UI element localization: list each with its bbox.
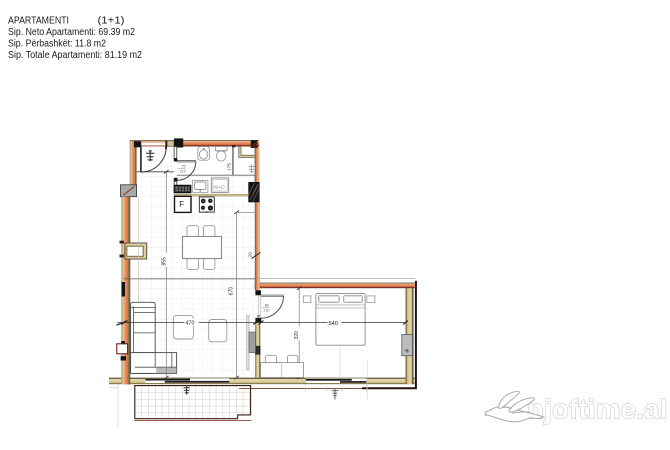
- svg-text:F: F: [179, 200, 184, 209]
- svg-text:470: 470: [186, 321, 195, 327]
- svg-text:2: 2: [326, 388, 328, 392]
- svg-text:210: 210: [180, 169, 186, 173]
- svg-text:80: 80: [265, 304, 269, 308]
- svg-text:175: 175: [227, 163, 233, 171]
- svg-text:320: 320: [294, 331, 300, 340]
- svg-text:210: 210: [263, 308, 269, 312]
- svg-text:670: 670: [229, 287, 235, 296]
- svg-text:540: 540: [329, 321, 338, 327]
- svg-text:Sip. Përbashkët: 11.8 m2: Sip. Përbashkët: 11.8 m2: [8, 39, 106, 50]
- svg-text:75: 75: [182, 165, 186, 169]
- svg-text:20: 20: [247, 252, 252, 258]
- svg-text:855: 855: [161, 257, 167, 266]
- svg-text:Sip. Totale Apartamenti: 81.19: Sip. Totale Apartamenti: 81.19 m2: [8, 50, 142, 61]
- svg-text:20: 20: [256, 314, 261, 320]
- svg-text:W+D: W+D: [213, 185, 225, 191]
- svg-text:njoftime.al: njoftime.al: [527, 394, 668, 425]
- svg-text:9: 9: [341, 388, 343, 392]
- svg-text:(1+1): (1+1): [98, 16, 125, 27]
- svg-text:APARTAMENTI: APARTAMENTI: [8, 16, 69, 27]
- svg-text:Sip. Neto Apartamenti: 69.39 m: Sip. Neto Apartamenti: 69.39 m2: [8, 27, 135, 38]
